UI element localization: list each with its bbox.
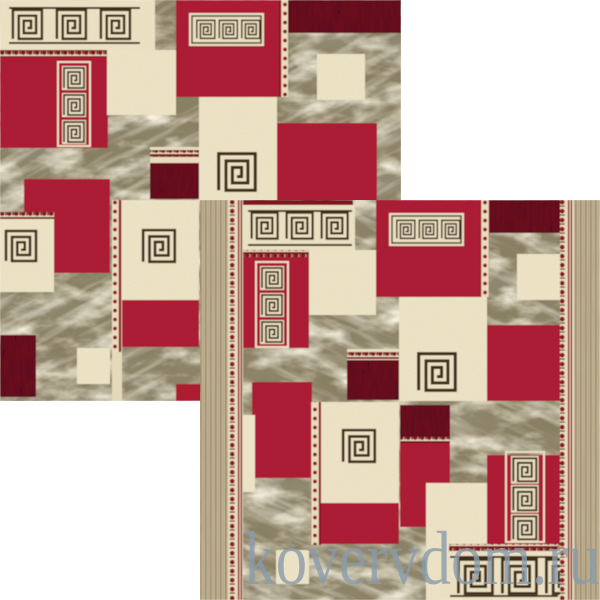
svg-text:kovervdom.ru: kovervdom.ru [244, 517, 600, 600]
